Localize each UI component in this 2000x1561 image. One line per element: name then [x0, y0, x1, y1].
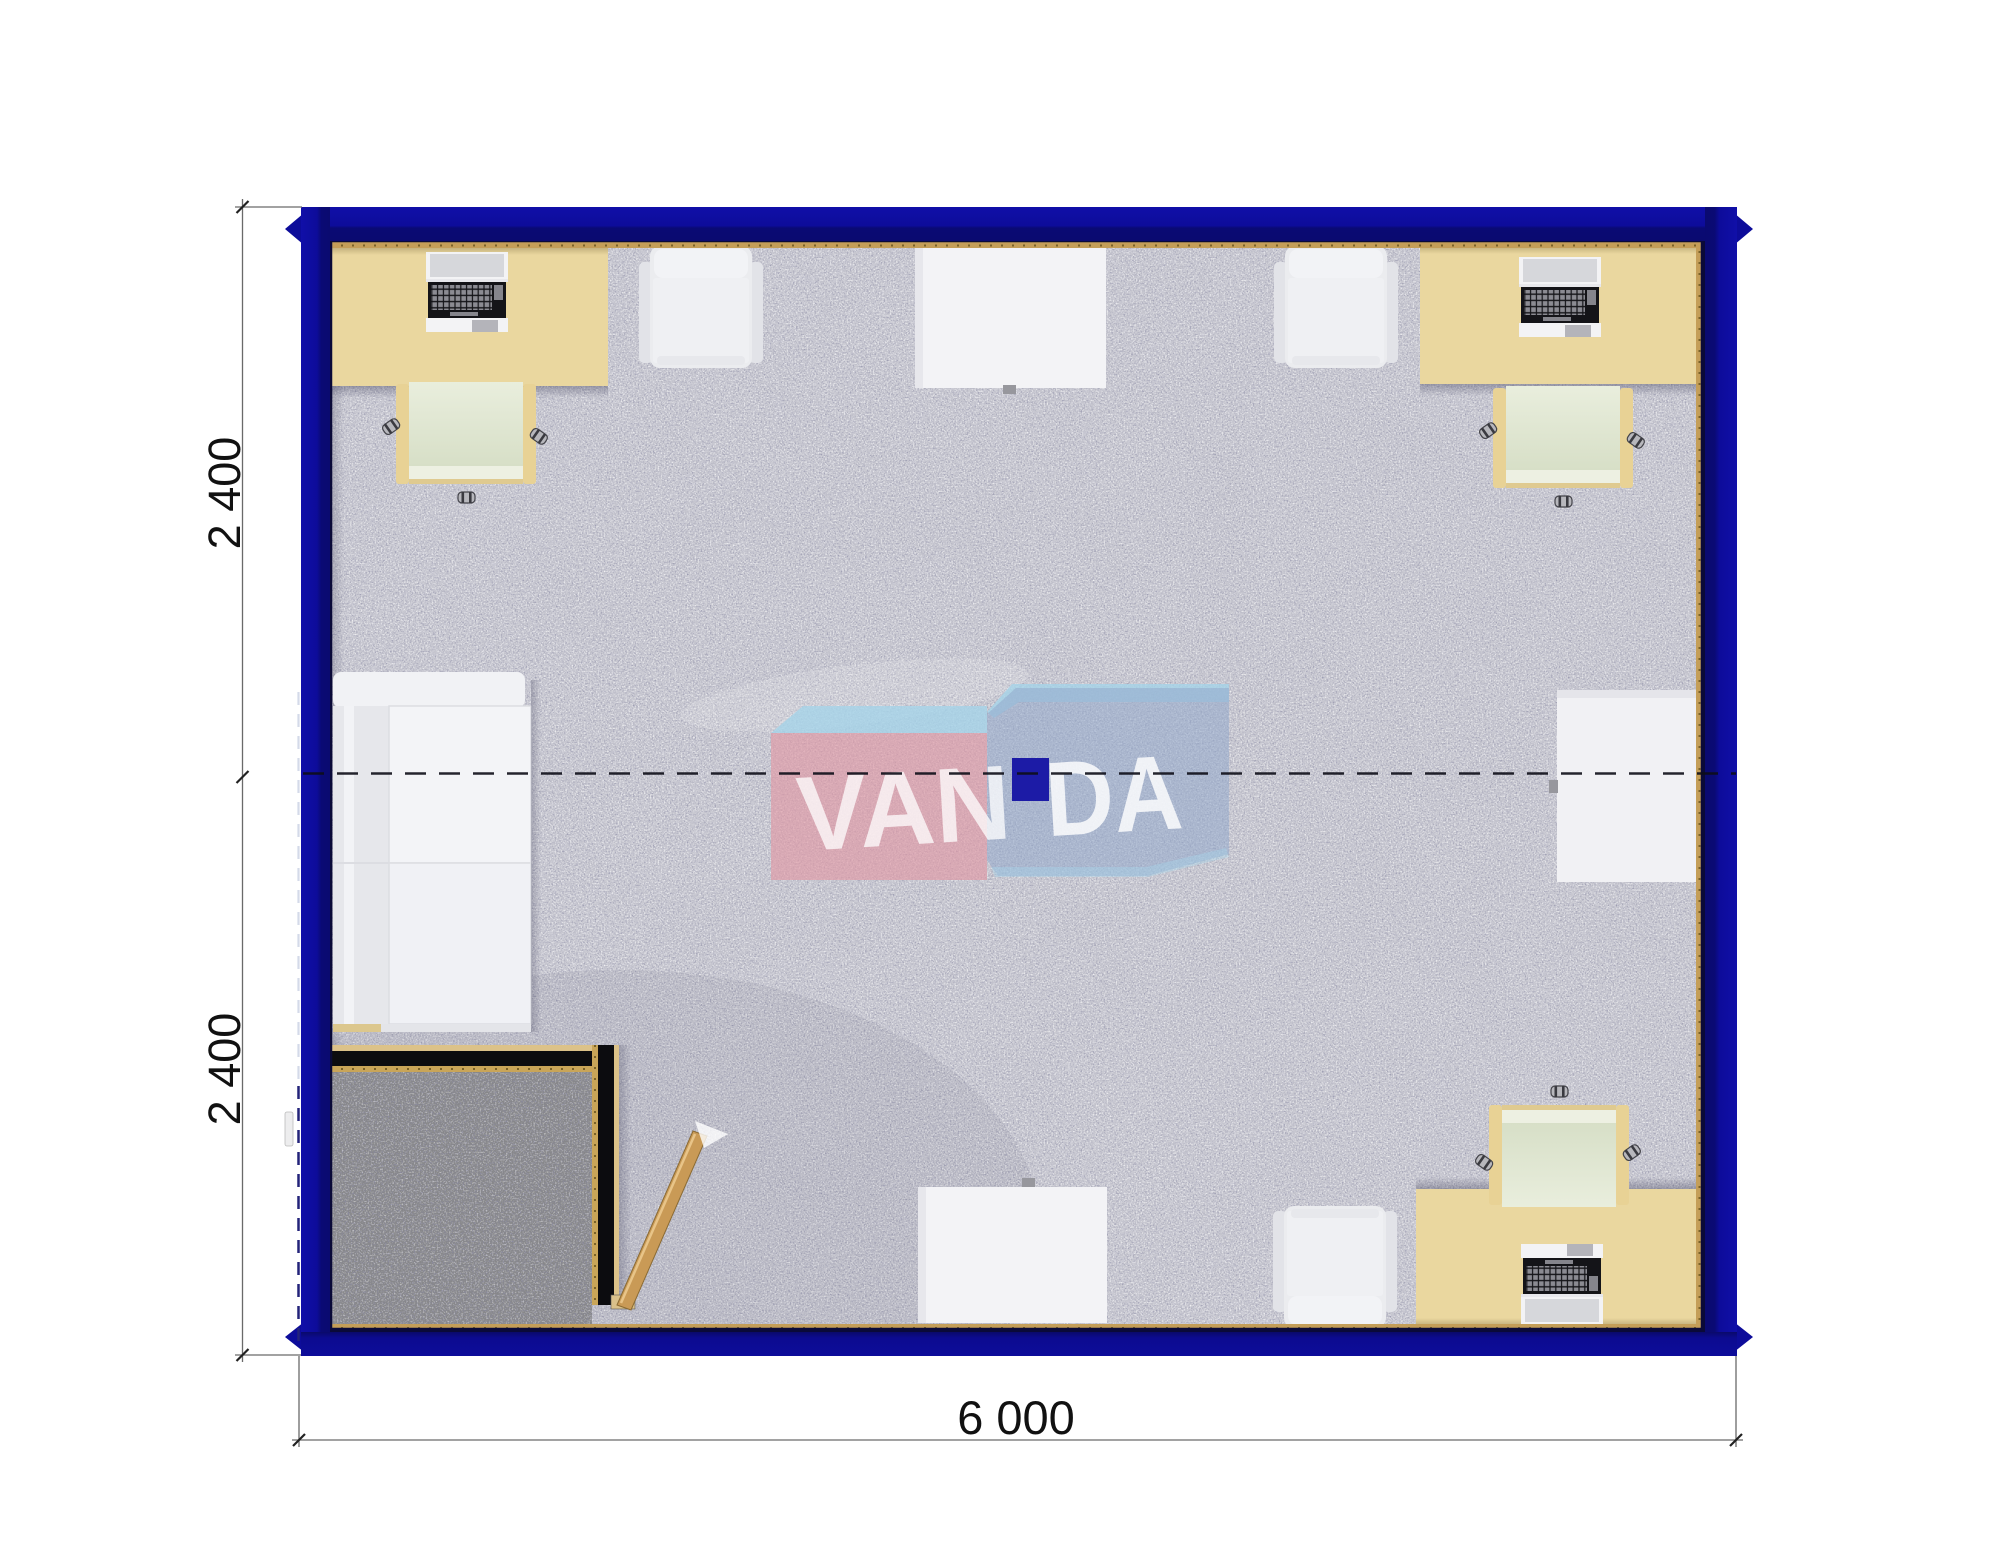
svg-text:6 000: 6 000 [957, 1391, 1075, 1444]
svg-text:2 400: 2 400 [199, 437, 250, 550]
svg-text:VAN: VAN [793, 743, 1014, 873]
svg-text:DA: DA [1042, 733, 1186, 859]
svg-text:2 400: 2 400 [199, 1013, 250, 1126]
